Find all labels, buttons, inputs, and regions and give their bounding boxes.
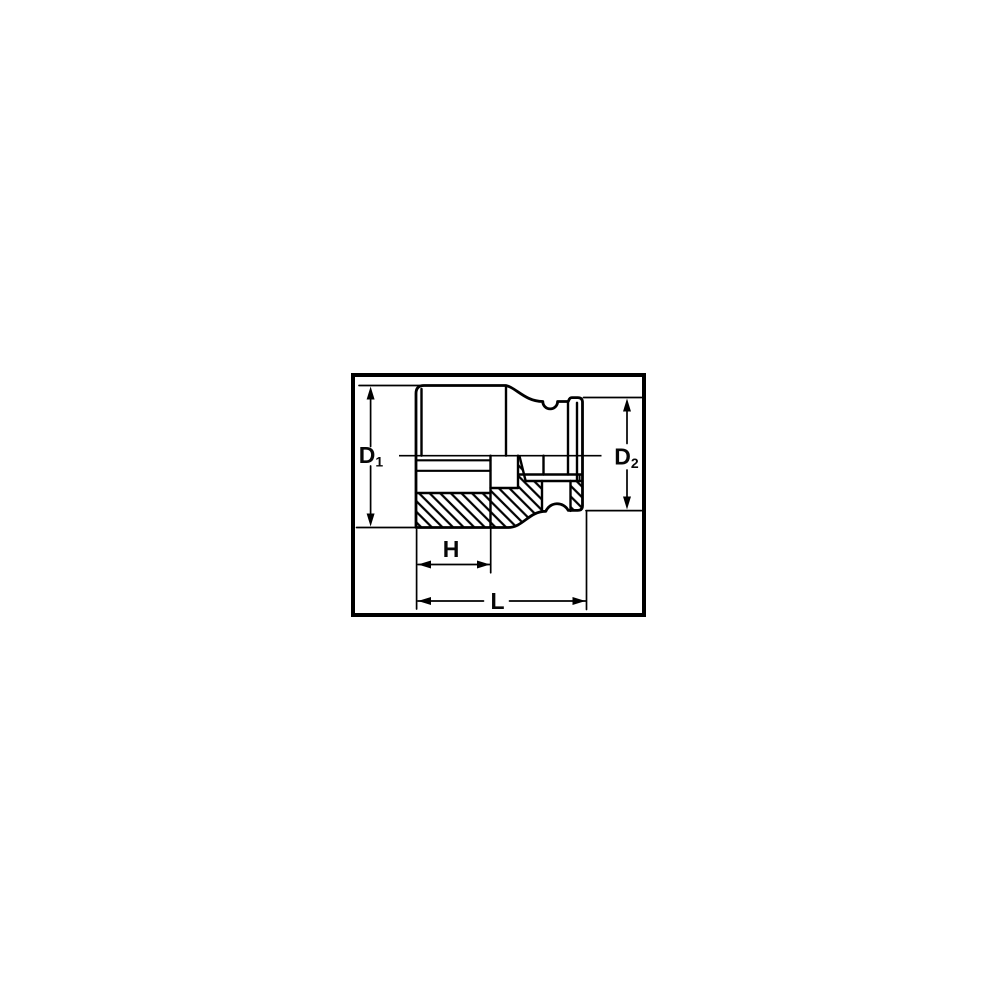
technical-diagram: D1 D2 H L: [0, 0, 1000, 1000]
dim-label-h: H: [443, 536, 460, 562]
h-text: H: [443, 536, 460, 562]
d1-subscript: 1: [375, 454, 383, 470]
page-background: D1 D2 H L: [0, 0, 1000, 1000]
dim-label-l: L: [490, 588, 504, 614]
l-text: L: [490, 588, 504, 614]
d1-base: D: [359, 442, 376, 468]
d2-subscript: 2: [631, 455, 639, 471]
d2-base: D: [614, 444, 631, 470]
